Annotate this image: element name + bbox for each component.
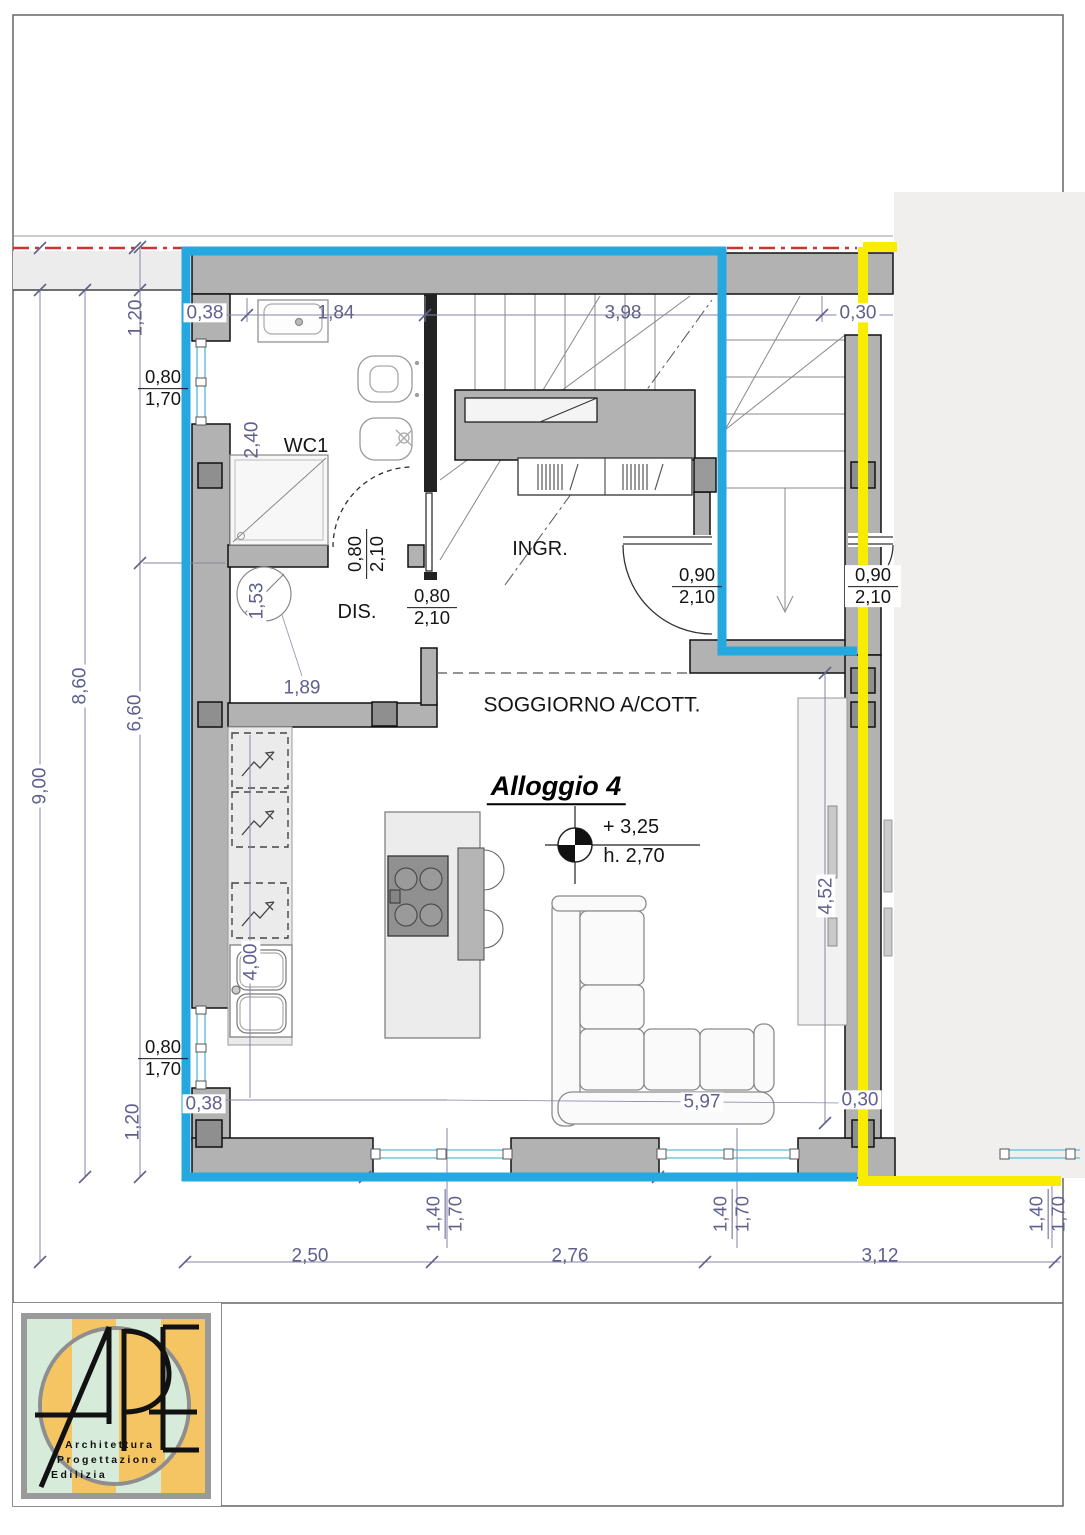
kitchen-sink — [230, 945, 292, 1037]
washbasin — [258, 300, 328, 342]
kitchen-island — [385, 812, 504, 1038]
ape-logo: Architettura Progettazione Edilizia — [21, 1313, 211, 1499]
sofa — [552, 896, 774, 1126]
shower — [230, 455, 328, 545]
neighbour-panel — [894, 192, 1085, 1178]
ape-logo-letters — [27, 1319, 205, 1493]
floor-plan-page: 0,381,843,980,301,202,401,531,896,608,60… — [0, 0, 1085, 1535]
logo-box: Architettura Progettazione Edilizia — [13, 1303, 221, 1506]
elevation-marker — [545, 806, 700, 884]
logo-line2: Progettazione — [57, 1454, 159, 1466]
walls — [192, 253, 895, 1178]
stairs-right — [724, 296, 845, 612]
toilet — [358, 356, 419, 402]
bidet — [360, 418, 412, 460]
wc-partition — [424, 294, 437, 580]
logo-line1: Architettura — [65, 1439, 155, 1451]
boiler-circle — [237, 567, 302, 676]
stair-platform — [465, 398, 597, 422]
logo-line3: Edilizia — [51, 1469, 107, 1481]
closet — [518, 458, 692, 495]
